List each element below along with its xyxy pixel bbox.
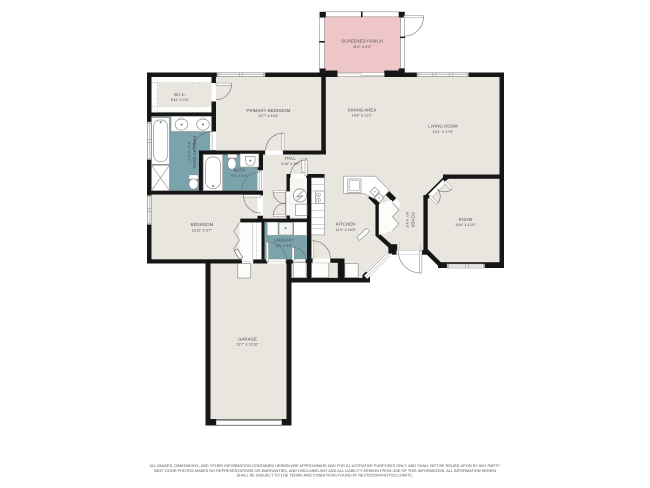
svg-text:15'1" X 17'8": 15'1" X 17'8"	[433, 130, 454, 134]
svg-text:15'11" X 9'7": 15'11" X 9'7"	[192, 229, 213, 233]
svg-text:BEDROOM: BEDROOM	[191, 222, 214, 227]
svg-text:11'7" X 22'10": 11'7" X 22'10"	[236, 343, 259, 347]
svg-text:PRIMARY BEDROOM: PRIMARY BEDROOM	[247, 108, 291, 113]
svg-text:6'10" X 9'5": 6'10" X 9'5"	[281, 162, 300, 166]
svg-text:W.I.C.: W.I.C.	[174, 92, 186, 97]
svg-text:4'0" X 8'5": 4'0" X 8'5"	[405, 212, 409, 229]
svg-text:PRIMARY BATH: PRIMARY BATH	[192, 136, 197, 169]
svg-text:NEXT DOOR PHOTOS MAKES NO REPR: NEXT DOOR PHOTOS MAKES NO REPRESENTATION…	[154, 469, 497, 473]
svg-text:HALL: HALL	[285, 156, 297, 161]
svg-text:DINING AREA: DINING AREA	[348, 107, 377, 112]
svg-text:KITCHEN: KITCHEN	[336, 222, 355, 227]
svg-text:8'2" X 5'6": 8'2" X 5'6"	[231, 174, 248, 178]
svg-text:15'7" X 10'9": 15'7" X 10'9"	[258, 114, 279, 118]
svg-text:LAUNDRY: LAUNDRY	[274, 238, 295, 243]
svg-text:FOYER: FOYER	[411, 212, 416, 227]
svg-text:10'4" X 11'1": 10'4" X 11'1"	[352, 114, 373, 118]
svg-text:SCREENED PORCH: SCREENED PORCH	[341, 39, 383, 44]
svg-text:LIVING ROOM: LIVING ROOM	[428, 124, 458, 129]
svg-text:BATH: BATH	[234, 168, 245, 173]
svg-text:ALL IMAGES, DIMENSIONS, AND OT: ALL IMAGES, DIMENSIONS, AND OTHER INFORM…	[149, 464, 500, 468]
svg-text:8'11" X 5'9": 8'11" X 5'9"	[171, 98, 190, 102]
svg-text:10'8" X 12'5": 10'8" X 12'5"	[455, 223, 476, 227]
svg-text:11'0" X 8'3": 11'0" X 8'3"	[353, 45, 372, 49]
svg-text:8'11" X 10'7": 8'11" X 10'7"	[187, 142, 191, 163]
svg-text:GARAGE: GARAGE	[238, 336, 257, 341]
svg-text:ROOM: ROOM	[459, 217, 473, 222]
svg-text:6'5" X 5'8": 6'5" X 5'8"	[276, 244, 293, 248]
svg-text:SHALL BE SUBJECT TO THE TERMS: SHALL BE SUBJECT TO THE TERMS AND CONDIT…	[237, 474, 414, 478]
svg-text:12'4" X 16'0": 12'4" X 16'0"	[335, 228, 356, 232]
